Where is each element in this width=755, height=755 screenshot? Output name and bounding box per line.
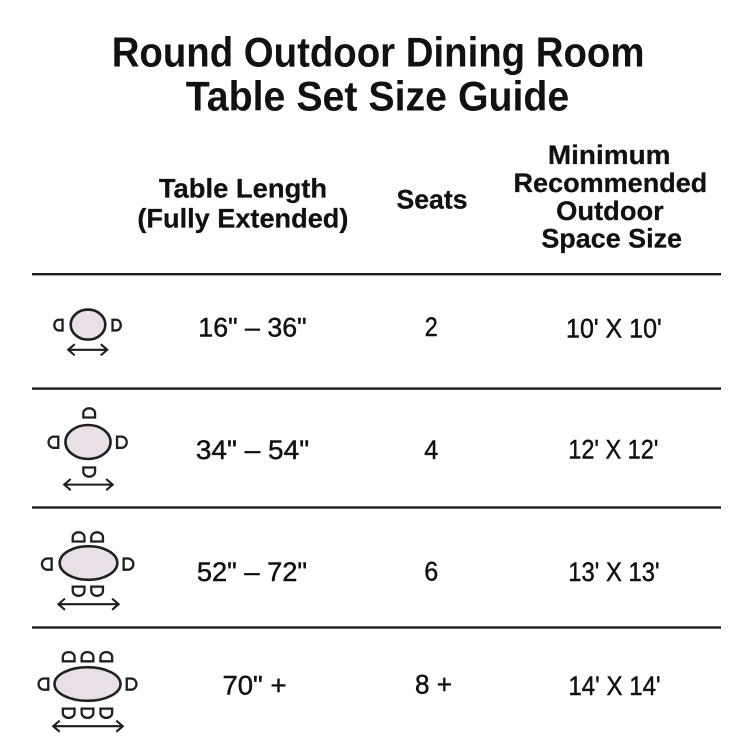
svg-text:70" +: 70" +	[223, 671, 287, 701]
svg-text:8 +: 8 +	[415, 670, 452, 700]
svg-text:Space Size: Space Size	[541, 224, 682, 254]
svg-text:Minimum: Minimum	[548, 140, 671, 170]
svg-text:Round Outdoor Dining Room: Round Outdoor Dining Room	[112, 30, 645, 76]
svg-text:6: 6	[424, 556, 438, 586]
svg-text:34" – 54": 34" – 54"	[196, 435, 309, 465]
svg-text:(Fully Extended): (Fully Extended)	[137, 203, 348, 233]
svg-text:2: 2	[425, 312, 438, 342]
svg-text:52" – 72": 52" – 72"	[197, 557, 307, 587]
svg-text:16" – 36": 16" – 36"	[198, 312, 306, 342]
svg-text:Recommended: Recommended	[514, 168, 708, 198]
svg-text:Table Set Size Guide: Table Set Size Guide	[186, 74, 570, 120]
svg-text:14' X 14': 14' X 14'	[568, 671, 660, 701]
svg-text:Outdoor: Outdoor	[556, 196, 664, 226]
svg-text:Table Length: Table Length	[159, 174, 327, 204]
svg-text:13' X 13': 13' X 13'	[568, 557, 659, 587]
svg-text:4: 4	[424, 435, 438, 465]
svg-text:Seats: Seats	[397, 185, 468, 215]
svg-text:12' X 12': 12' X 12'	[568, 435, 658, 465]
svg-text:10' X 10': 10' X 10'	[566, 313, 662, 343]
